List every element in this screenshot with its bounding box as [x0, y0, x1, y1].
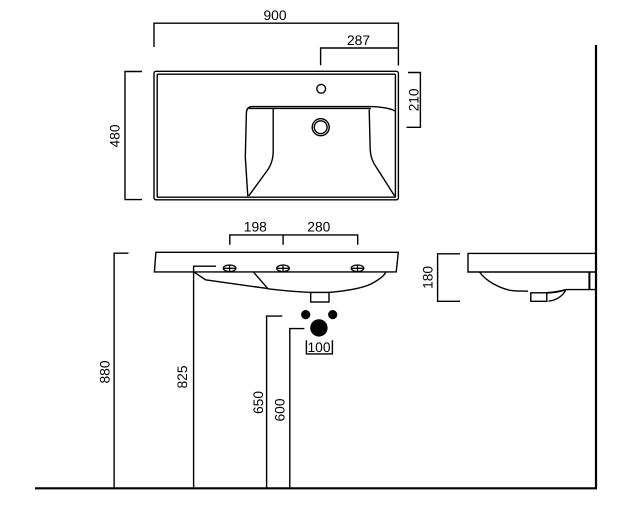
svg-text:280: 280: [307, 219, 330, 234]
svg-text:650: 650: [251, 391, 266, 414]
svg-text:287: 287: [347, 33, 370, 48]
svg-text:880: 880: [98, 360, 113, 383]
svg-text:600: 600: [273, 398, 288, 421]
svg-text:180: 180: [421, 266, 436, 289]
svg-text:825: 825: [175, 365, 190, 388]
svg-text:900: 900: [263, 8, 286, 23]
svg-text:100: 100: [307, 340, 330, 355]
svg-text:480: 480: [108, 124, 123, 147]
svg-text:210: 210: [407, 88, 422, 111]
svg-text:198: 198: [244, 219, 267, 234]
